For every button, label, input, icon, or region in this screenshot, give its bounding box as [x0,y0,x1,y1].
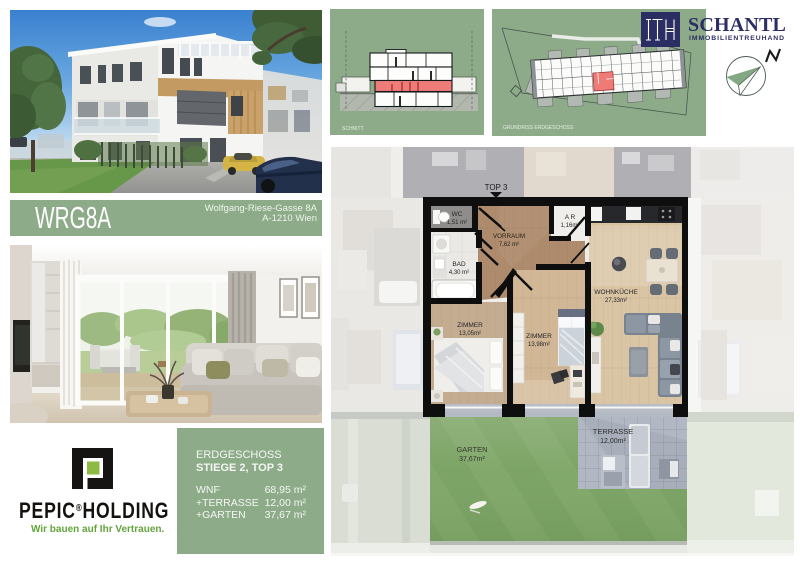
svg-text:7,62 m²: 7,62 m² [499,242,519,248]
svg-text:A R: A R [565,214,576,221]
svg-text:12,00m²: 12,00m² [600,438,626,445]
svg-text:WC: WC [452,211,463,218]
svg-text:BAD: BAD [452,261,466,268]
svg-text:4,30 m²: 4,30 m² [449,270,469,276]
svg-text:SCHNITT: SCHNITT [342,126,364,132]
svg-text:TOP 3: TOP 3 [485,183,508,192]
svg-text:ZIMMER: ZIMMER [457,322,483,329]
svg-text:GARTEN: GARTEN [456,445,487,454]
svg-text:1,51 m²: 1,51 m² [447,220,467,226]
svg-text:WOHNKÜCHE: WOHNKÜCHE [594,288,638,296]
svg-text:13,98m²: 13,98m² [528,342,550,348]
svg-text:ZIMMER: ZIMMER [526,333,552,340]
svg-text:37,67m²: 37,67m² [459,456,485,463]
svg-text:VORRAUM: VORRAUM [493,233,525,240]
svg-text:27,33m²: 27,33m² [605,298,627,304]
svg-text:1,16m²: 1,16m² [561,223,580,229]
svg-text:GRUNDRISS ERDGESCHOSS: GRUNDRISS ERDGESCHOSS [503,125,574,131]
svg-text:13,05m²: 13,05m² [459,331,481,337]
svg-text:TERRASSE: TERRASSE [593,427,633,436]
